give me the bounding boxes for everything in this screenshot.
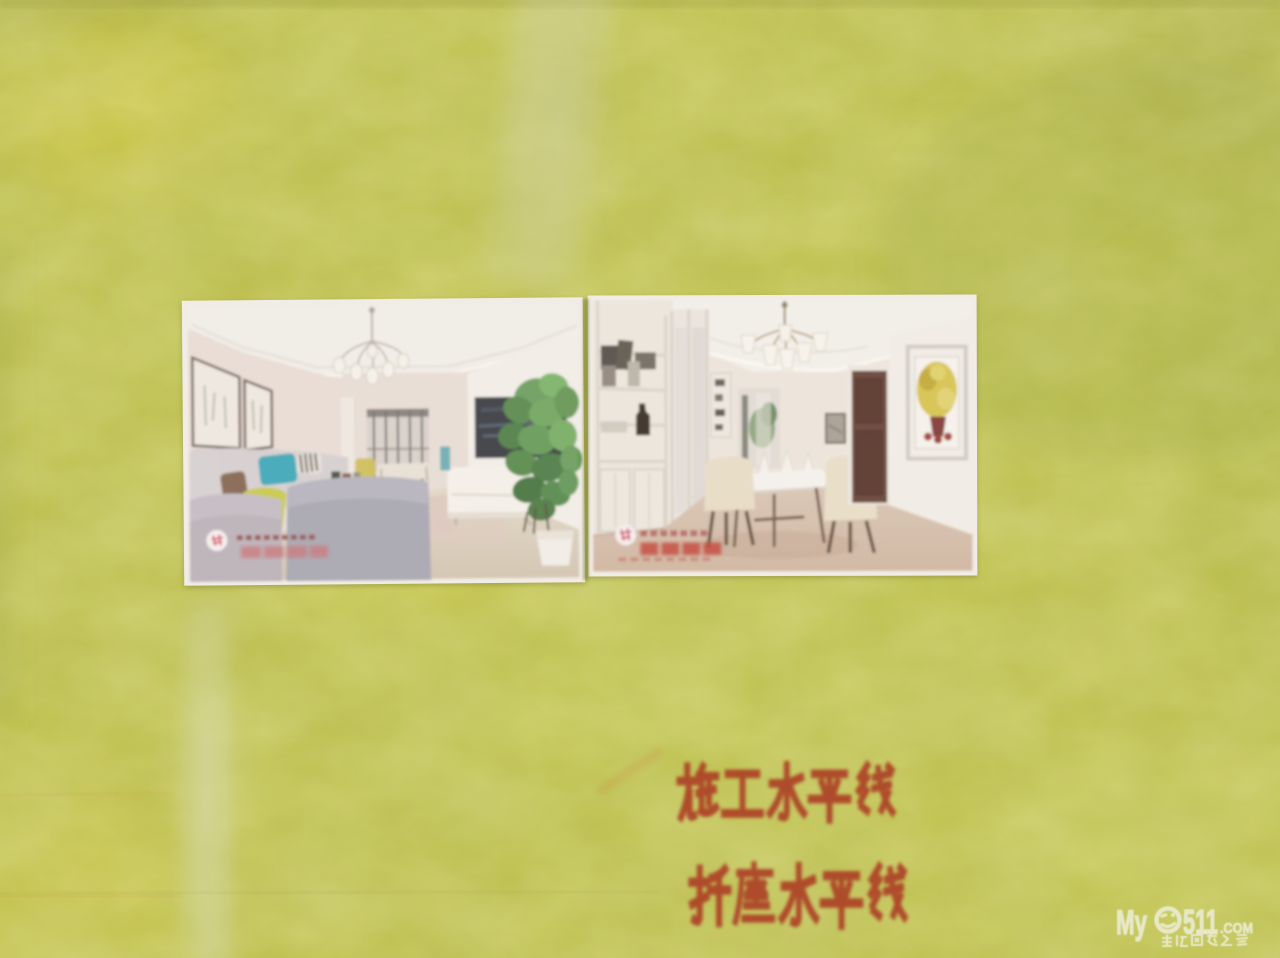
- svg-text:My: My: [1116, 904, 1147, 942]
- svg-text:.COM: .COM: [1220, 921, 1253, 937]
